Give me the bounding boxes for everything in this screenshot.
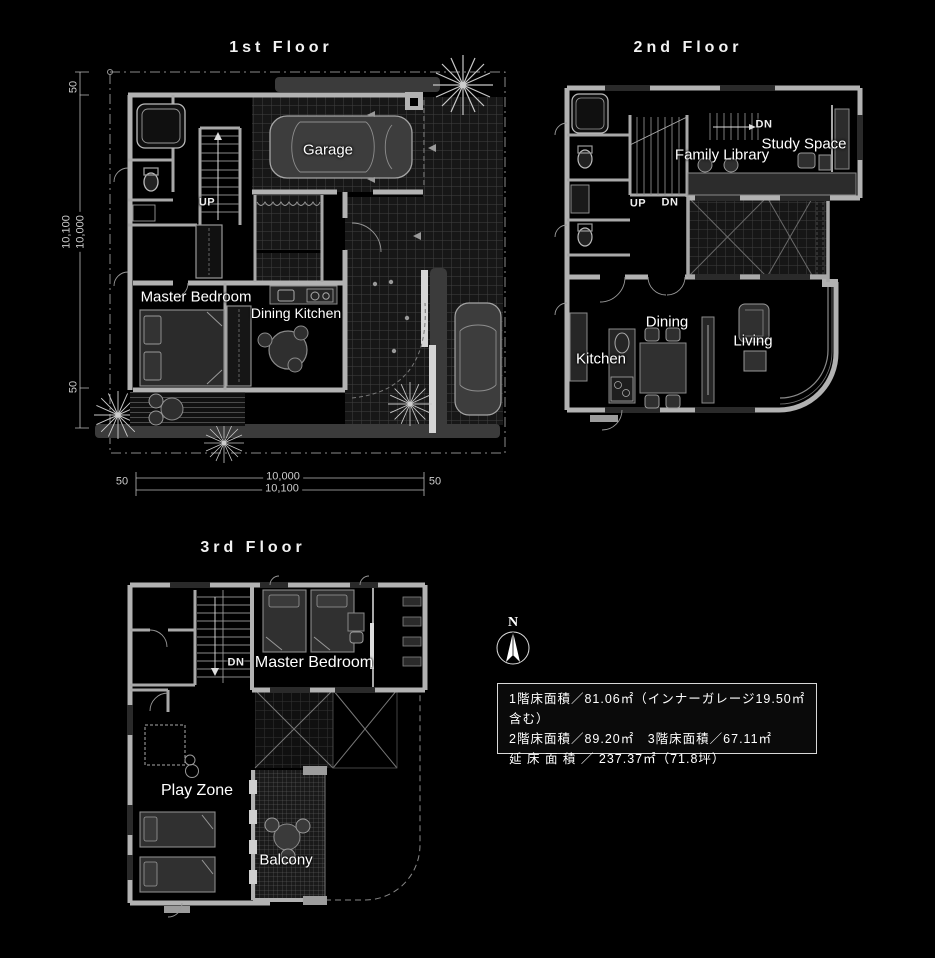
- bathroom-fixtures-2f: [571, 94, 608, 246]
- room-label-dining: Dining: [646, 315, 689, 330]
- room-label-dining-kitchen: Dining Kitchen: [251, 306, 341, 320]
- floor-plan-sheet: 1st Floor 2nd Floor 3rd Floor Garage UP …: [0, 0, 935, 958]
- kids-beds: [140, 812, 215, 892]
- dim-side-inner: 10,000: [76, 212, 87, 252]
- third-floor-plan: [120, 575, 440, 940]
- wardrobe: [227, 306, 251, 386]
- staircase-down-3f: [197, 590, 250, 683]
- shoe-closet: [196, 225, 222, 278]
- stair-label-dn-upper-2f: DN: [756, 120, 773, 131]
- dim-side-top: 50: [69, 78, 80, 96]
- dim-side-bottom: 50: [69, 378, 80, 396]
- first-floor-title: 1st Floor: [229, 40, 333, 56]
- area-line-total: 延 床 面 積 ／ 237.37㎡（71.8坪）: [498, 749, 816, 769]
- living-furniture: [702, 304, 769, 403]
- stair-label-dn-lower-2f: DN: [662, 198, 679, 209]
- staircase-upper-2f: [710, 113, 758, 140]
- dining-table-set: [258, 326, 308, 372]
- room-label-balcony: Balcony: [259, 853, 312, 868]
- north-label: N: [508, 616, 518, 630]
- stair-label-dn-3f: DN: [228, 658, 245, 669]
- room-label-family-library: Family Library: [675, 148, 769, 163]
- room-label-living: Living: [733, 334, 772, 349]
- room-label-master-bedroom-1f: Master Bedroom: [141, 290, 252, 305]
- porch-step-2f: [590, 415, 618, 422]
- first-floor-plan: [55, 60, 510, 500]
- dining-set-2f: [640, 328, 686, 408]
- floor-area-table: 1階床面積／81.06㎡（インナーガレージ19.50㎡含む） 2階床面積／89.…: [497, 683, 817, 754]
- dim-bottom-left: 50: [113, 477, 131, 488]
- area-line-2f-3f: 2階床面積／89.20㎡ 3階床面積／67.11㎡: [498, 729, 816, 749]
- room-label-master-bedroom-3f: Master Bedroom: [255, 655, 373, 671]
- stair-label-up-2f: UP: [630, 199, 646, 210]
- stair-label-up-1f: UP: [199, 198, 215, 209]
- dim-bottom-total: 10,100: [262, 484, 302, 495]
- dim-side-total: 10,100: [62, 212, 73, 252]
- play-zone-items: [145, 725, 199, 778]
- dim-bottom-inner: 10,000: [263, 472, 303, 483]
- balcony-curve: [779, 279, 838, 410]
- room-label-study-space: Study Space: [761, 137, 846, 152]
- single-beds: [263, 590, 364, 652]
- room-label-kitchen: Kitchen: [576, 352, 626, 367]
- north-arrow-icon: [495, 629, 535, 669]
- atrium-void: [688, 197, 828, 277]
- kitchen-counter: [270, 286, 337, 304]
- room-label-garage: Garage: [303, 143, 353, 158]
- room-label-play-zone: Play Zone: [161, 783, 233, 799]
- walk-in-closet: [370, 597, 421, 669]
- dim-bottom-right: 50: [426, 477, 444, 488]
- double-bed: [140, 310, 224, 386]
- area-line-1f: 1階床面積／81.06㎡（インナーガレージ19.50㎡含む）: [498, 684, 816, 729]
- wood-deck: [130, 392, 245, 426]
- bathroom-fixtures: [133, 104, 185, 221]
- second-floor-title: 2nd Floor: [634, 40, 743, 56]
- third-floor-title: 3rd Floor: [200, 540, 305, 556]
- car-in-driveway: [455, 303, 501, 415]
